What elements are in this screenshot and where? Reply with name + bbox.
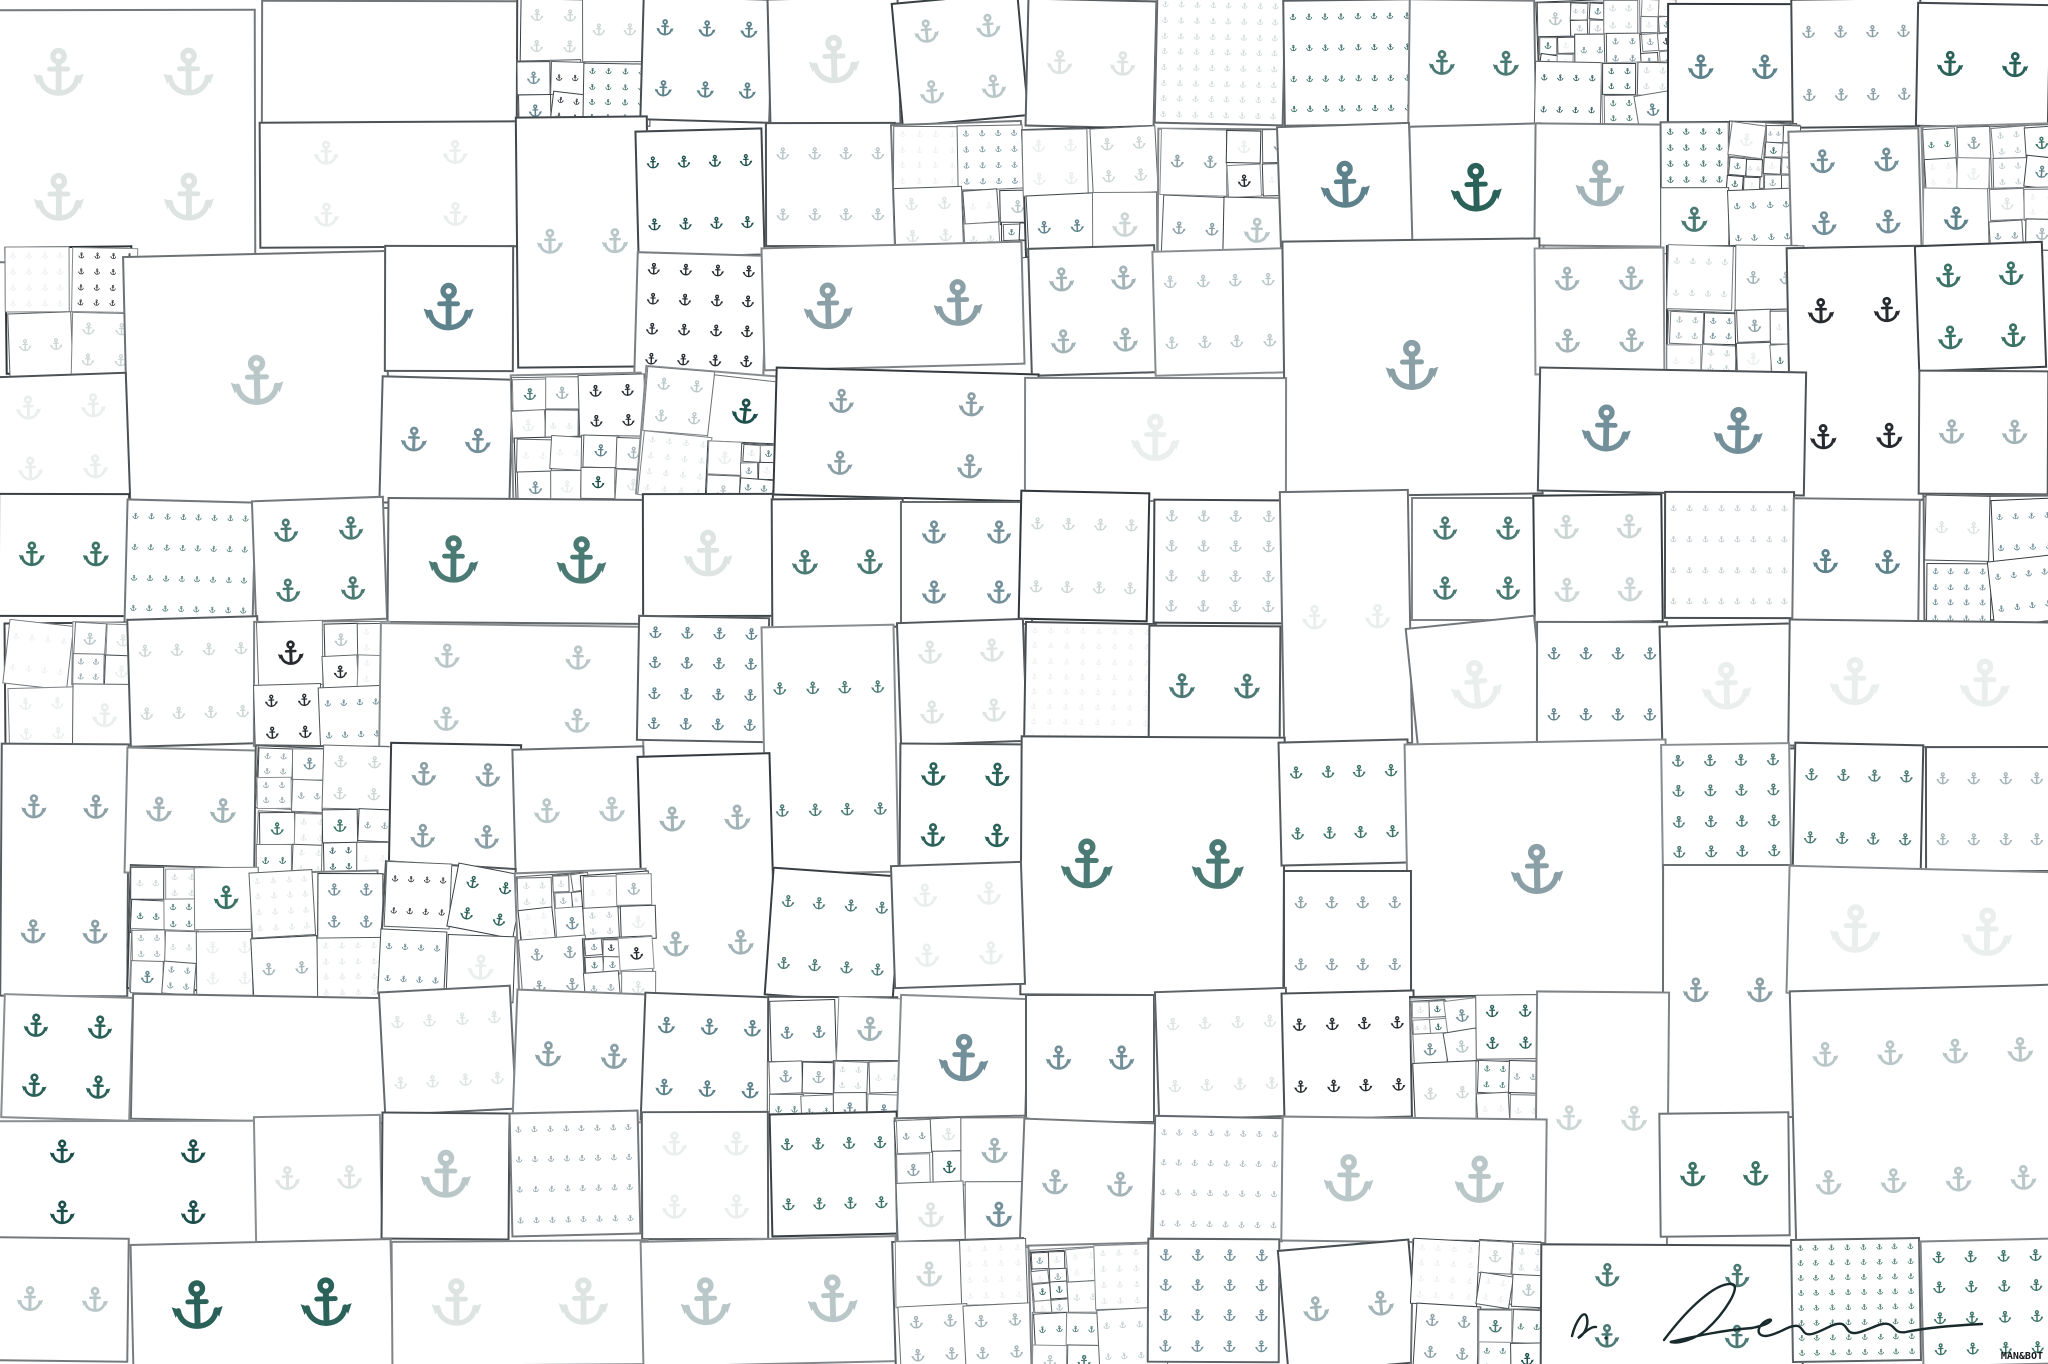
anchor-icon [1594, 1262, 1620, 1288]
anchor-icon [1609, 21, 1616, 28]
anchor-icon [25, 284, 32, 291]
anchor-grid [1535, 62, 1601, 127]
anchor-grid [898, 1304, 969, 1364]
anchor-icon [1290, 44, 1297, 51]
anchor-icon [1207, 1221, 1214, 1228]
anchor-icon [1998, 545, 2005, 552]
anchor-icon [1371, 43, 1378, 50]
anchor-icon [1702, 598, 1709, 605]
anchor-icon [1874, 550, 1901, 577]
anchor-icon [1239, 1191, 1246, 1198]
anchor-icon [1127, 644, 1134, 651]
anchor-icon [564, 1216, 571, 1223]
anchor-icon [1486, 1004, 1500, 1018]
anchor-icon [1672, 290, 1679, 297]
anchor-icon [1322, 1152, 1376, 1206]
anchor-icon [1553, 577, 1580, 604]
anchor-icon [995, 162, 1002, 169]
mosaic-tile [642, 493, 775, 617]
anchor-icon [1710, 319, 1717, 326]
mosaic-tile [1477, 1308, 1543, 1364]
mosaic-tile [1914, 241, 2048, 372]
anchor-icon [1046, 673, 1053, 680]
anchor-icon [1159, 1220, 1166, 1227]
anchor-icon [1742, 1160, 1770, 1188]
anchor-icon [1322, 13, 1329, 20]
anchor-icon [1540, 106, 1547, 113]
anchor-icon [1307, 106, 1314, 113]
anchor-icon [763, 466, 771, 474]
anchor-grid [743, 444, 760, 461]
anchor-icon [1062, 688, 1069, 695]
anchor-icon [605, 68, 612, 75]
anchor-icon [1749, 165, 1754, 170]
anchor-icon [423, 876, 430, 883]
anchor-icon [963, 162, 970, 169]
anchor-icon [1111, 327, 1139, 355]
mosaic-tile [1924, 157, 1959, 191]
anchor-icon [533, 1217, 540, 1224]
anchor-grid [1026, 379, 1285, 501]
anchor-icon [744, 688, 757, 701]
anchor-icon [1353, 765, 1367, 779]
anchor-icon [1877, 1349, 1884, 1356]
anchor-icon [94, 284, 101, 291]
anchor-icon [1014, 1244, 1021, 1251]
anchor-icon [839, 1066, 846, 1073]
anchor-icon [967, 1278, 974, 1285]
anchor-icon [2006, 1036, 2034, 1064]
anchor-grid [323, 746, 392, 811]
anchor-icon [1272, 35, 1279, 42]
anchor-icon [93, 673, 100, 680]
anchor-icon [1899, 770, 1913, 784]
anchor-icon [870, 680, 884, 694]
anchor-icon [1223, 1191, 1230, 1198]
anchor-grid [1027, 996, 1153, 1121]
anchor-icon [647, 218, 661, 232]
anchor-icon [1322, 44, 1329, 51]
anchor-icon [1809, 424, 1838, 453]
anchor-icon [1455, 1347, 1470, 1362]
anchor-icon [1425, 1313, 1440, 1328]
anchor-icon [1876, 1289, 1883, 1296]
anchor-icon [1704, 784, 1717, 797]
mosaic-tile [1283, 0, 1419, 127]
anchor-icon [709, 324, 722, 337]
anchor-icon [631, 916, 646, 931]
anchor-icon [1191, 1279, 1204, 1292]
anchor-icon [1967, 521, 1981, 535]
mosaic-tile [962, 188, 999, 224]
anchor-icon [1682, 977, 1710, 1005]
mosaic-tile [1537, 2, 1573, 37]
anchor-icon [2010, 572, 2018, 580]
anchor-icon [417, 944, 424, 951]
anchor-icon [1192, 64, 1199, 71]
mosaic-tile [580, 466, 616, 499]
mosaic-tile [633, 251, 767, 379]
anchor-grid [902, 503, 1031, 623]
anchor-icon [357, 698, 364, 705]
anchor-icon [19, 919, 46, 946]
anchor-icon [345, 863, 352, 870]
anchor-icon [1109, 50, 1137, 78]
anchor-icon [1271, 82, 1278, 89]
anchor-icon [1594, 1323, 1620, 1349]
anchor-icon [1667, 144, 1674, 151]
anchor-icon [1357, 1017, 1371, 1031]
anchor-icon [1132, 1264, 1139, 1271]
anchor-icon [1746, 977, 1774, 1005]
anchor-icon [1770, 180, 1777, 187]
anchor-icon [560, 898, 568, 906]
anchor-icon [2001, 419, 2029, 447]
anchor-icon [2042, 568, 2048, 576]
anchor-icon [980, 1137, 1008, 1165]
anchor-grid [1067, 1344, 1099, 1364]
anchor-icon [776, 956, 791, 971]
anchor-icon [1061, 580, 1075, 594]
mosaic-tile [1409, 994, 1539, 1124]
mosaic-tile [261, 0, 520, 127]
anchor-icon [1736, 845, 1749, 858]
mosaic-tile [321, 809, 357, 843]
anchor-icon [1124, 582, 1138, 596]
anchor-icon [1997, 1310, 2011, 1324]
anchor-icon [1581, 9, 1586, 14]
anchor-grid [643, 1113, 768, 1239]
anchor-icon [2044, 511, 2048, 518]
anchor-icon [2029, 1248, 2043, 1262]
anchor-icon [1679, 1161, 1707, 1189]
anchor-icon [1125, 519, 1139, 533]
anchor-icon [1127, 629, 1134, 636]
anchor-grid [1281, 491, 1411, 744]
anchor-icon [299, 1277, 355, 1333]
anchor-icon [1416, 1291, 1423, 1298]
anchor-icon [1126, 689, 1133, 696]
anchor-icon [1301, 604, 1329, 632]
anchor-icon [1814, 1350, 1821, 1357]
anchor-icon [1126, 674, 1133, 681]
anchor-icon [1509, 842, 1566, 899]
anchor-grid [517, 117, 649, 366]
anchor-icon [2030, 771, 2044, 785]
anchor-grid [378, 929, 446, 996]
anchor-icon [1356, 957, 1370, 971]
anchor-icon [775, 804, 789, 818]
mosaic-tile [582, 434, 619, 468]
anchor-icon [776, 208, 790, 222]
anchor-icon [180, 514, 187, 521]
anchor-grid [641, 0, 771, 122]
anchor-icon [1615, 513, 1642, 540]
anchor-icon [1797, 1245, 1804, 1252]
mosaic-tile [386, 497, 648, 625]
anchor-grid [73, 684, 137, 747]
anchor-icon [1457, 1315, 1472, 1330]
anchor-icon [209, 797, 237, 825]
anchor-icon [915, 178, 922, 185]
anchor-grid [0, 11, 254, 262]
anchor-icon [1256, 34, 1263, 41]
anchor-icon [1845, 1335, 1852, 1342]
anchor-icon [1769, 162, 1777, 170]
anchor-icon [626, 1184, 633, 1191]
anchor-grid [1790, 985, 2048, 1248]
anchor-icon [1643, 708, 1657, 722]
anchor-icon [1908, 1304, 1915, 1311]
anchor-icon [1110, 674, 1117, 681]
anchor-icon [1877, 1319, 1884, 1326]
anchor-icon [805, 681, 819, 695]
anchor-icon [1384, 764, 1398, 778]
anchor-icon [1684, 144, 1691, 151]
anchor-grid [1748, 159, 1764, 176]
mosaic-tile [1989, 123, 2048, 190]
anchor-icon [963, 146, 970, 153]
anchor-icon [1750, 536, 1757, 543]
anchor-icon [339, 942, 346, 949]
anchor-grid [74, 622, 106, 655]
mosaic-tile [1152, 1115, 1286, 1243]
anchor-icon [466, 954, 495, 983]
anchor-icon [368, 756, 382, 770]
anchor-icon [664, 454, 672, 462]
mosaic-tile [387, 741, 522, 870]
anchor-icon [1997, 147, 2005, 155]
anchor-icon [1948, 599, 1955, 606]
anchor-icon [29, 634, 37, 642]
mosaic-tile [2023, 155, 2048, 191]
anchor-icon [1094, 674, 1101, 681]
anchor-icon [2000, 197, 2014, 211]
mosaic-tile [123, 746, 258, 876]
anchor-grid [770, 1113, 897, 1236]
anchor-grid [1738, 310, 1773, 343]
anchor-icon [723, 803, 752, 832]
anchor-icon [203, 706, 217, 720]
anchor-icon [1078, 719, 1085, 726]
anchor-icon [680, 687, 693, 700]
anchor-icon [921, 580, 947, 606]
anchor-icon [77, 300, 84, 307]
anchor-icon [2030, 602, 2038, 610]
anchor-icon [966, 1246, 973, 1253]
anchor-icon [169, 920, 176, 927]
anchor-icon [1165, 336, 1179, 350]
anchor-icon [1071, 1252, 1079, 1260]
anchor-icon [904, 198, 918, 212]
anchor-icon [2012, 130, 2020, 138]
anchor-icon [50, 1139, 76, 1165]
anchor-icon [826, 450, 854, 478]
anchor-grid [9, 687, 76, 750]
mosaic-tile [1066, 1343, 1100, 1364]
mosaic-tile [1533, 247, 1665, 375]
anchor-icon [1967, 771, 1981, 785]
anchor-icon [985, 202, 993, 210]
anchor-icon [1892, 1289, 1899, 1296]
anchor-icon [1676, 317, 1683, 324]
anchor-icon [765, 450, 773, 458]
anchor-icon [1134, 168, 1149, 183]
anchor-icon [1191, 111, 1198, 118]
anchor-icon [272, 908, 279, 915]
anchor-icon [195, 514, 202, 521]
anchor-icon [713, 626, 726, 639]
anchor-icon [589, 913, 596, 920]
anchor-icon [932, 178, 939, 185]
anchor-icon [805, 1273, 860, 1328]
anchor-grid [1029, 246, 1157, 375]
anchor-icon [1943, 206, 1970, 233]
anchor-icon [1813, 1305, 1820, 1312]
anchor-icon [1726, 335, 1733, 342]
anchor-icon [1230, 510, 1243, 523]
anchor-icon [1117, 1296, 1124, 1303]
mosaic-tile [1065, 1311, 1100, 1345]
anchor-icon [1087, 1324, 1094, 1331]
anchor-icon [1704, 815, 1717, 828]
mosaic-tile [1154, 987, 1291, 1121]
anchor-icon [303, 907, 310, 914]
mosaic-tile [516, 0, 645, 122]
anchor-icon [1931, 1250, 1945, 1264]
anchor-icon [698, 1079, 717, 1098]
anchor-grid [1666, 493, 1793, 617]
anchor-icon [1208, 65, 1215, 72]
anchor-icon [919, 1133, 927, 1141]
anchor-icon [339, 957, 346, 964]
anchor-icon [1877, 1334, 1884, 1341]
anchor-icon [1735, 784, 1748, 797]
mosaic-tile [1029, 1245, 1102, 1315]
anchor-icon [1037, 1288, 1045, 1296]
anchor-icon [708, 154, 722, 168]
mosaic-tile [0, 1236, 130, 1363]
anchor-icon [648, 717, 661, 730]
mosaic-tile [1411, 1000, 1447, 1036]
anchor-icon [286, 892, 293, 899]
anchor-icon [82, 453, 110, 481]
anchor-icon [1769, 130, 1774, 135]
anchor-icon [661, 1131, 688, 1158]
anchor-icon [287, 907, 294, 914]
anchor-icon [699, 442, 707, 450]
anchor-icon [1734, 505, 1741, 512]
anchor-icon [580, 1216, 587, 1223]
anchor-icon [326, 731, 333, 738]
anchor-grid [961, 1240, 1028, 1306]
anchor-icon [593, 444, 607, 458]
anchor-icon [1193, 17, 1200, 24]
anchor-icon [405, 907, 412, 914]
anchor-icon [979, 162, 986, 169]
anchor-icon [432, 706, 460, 734]
anchor-icon [1008, 1313, 1023, 1328]
anchor-icon [280, 769, 287, 776]
mosaic-tile [384, 244, 514, 371]
anchor-grid [1535, 249, 1663, 373]
mosaic-tile [643, 366, 716, 436]
anchor-icon [437, 909, 444, 916]
anchor-icon [1391, 1078, 1405, 1092]
anchor-icon [534, 1040, 563, 1069]
anchor-icon [999, 1261, 1006, 1268]
anchor-icon [10, 300, 17, 307]
anchor-grid [585, 940, 602, 957]
mosaic-tile [129, 992, 390, 1123]
anchor-icon [1095, 643, 1102, 650]
anchor-icon [1111, 659, 1118, 666]
anchor-icon [1230, 570, 1243, 583]
anchor-icon [1121, 1351, 1129, 1359]
anchor-icon [595, 1185, 602, 1192]
mosaic-tile [639, 0, 773, 124]
anchor-icon [1434, 1244, 1441, 1251]
anchor-grid [325, 624, 359, 656]
anchor-icon [2034, 165, 2048, 180]
anchor-icon [110, 269, 117, 276]
anchor-icon [1997, 163, 2004, 170]
anchor-icon [690, 379, 705, 394]
anchor-icon [648, 262, 661, 275]
anchor-icon [1907, 1274, 1914, 1281]
mosaic-tile [1537, 367, 1807, 497]
anchor-icon [1710, 334, 1717, 341]
anchor-icon [698, 458, 706, 466]
anchor-icon [1240, 65, 1247, 72]
anchor-icon [1718, 598, 1725, 605]
anchor-icon [1734, 598, 1741, 605]
anchor-icon [1672, 754, 1685, 767]
anchor-icon [1813, 1275, 1820, 1282]
anchor-icon [1354, 13, 1361, 20]
anchor-icon [1209, 18, 1216, 25]
anchor-grid [771, 999, 837, 1064]
mosaic-tile [1570, 1, 1605, 35]
anchor-icon [995, 177, 1002, 184]
anchor-icon [1827, 903, 1883, 959]
anchor-icon [1828, 656, 1882, 710]
anchor-icon [163, 545, 170, 552]
anchor-icon [276, 639, 304, 667]
anchor-icon [1177, 64, 1184, 71]
anchor-icon [2030, 832, 2044, 846]
anchor-icon [1387, 957, 1401, 971]
mosaic-tile [1280, 990, 1417, 1121]
anchor-icon [780, 1025, 794, 1039]
anchor-icon [1238, 1222, 1245, 1229]
anchor-icon [359, 915, 373, 929]
anchor-icon [712, 688, 725, 701]
mosaic-tile [1027, 1241, 1162, 1364]
anchor-icon [1065, 171, 1079, 185]
anchor-icon [148, 513, 155, 520]
mosaic-tile [957, 124, 1024, 190]
anchor-icon [1073, 1268, 1081, 1276]
anchor-icon [1031, 517, 1045, 531]
anchor-icon [589, 68, 596, 75]
anchor-icon [380, 822, 388, 830]
anchor-icon [1750, 203, 1757, 210]
anchor-icon [17, 455, 45, 483]
anchor-icon [1177, 33, 1184, 40]
anchor-icon [294, 960, 309, 975]
anchor-icon [262, 857, 270, 865]
